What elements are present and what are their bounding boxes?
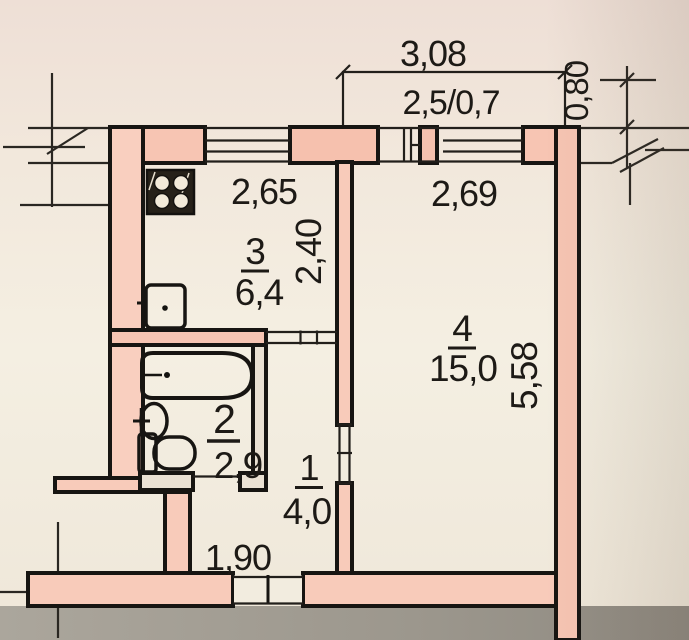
dim-balcony-width: 3,08 <box>400 33 466 74</box>
room-living-area: 15,0 <box>429 348 497 389</box>
room-bath-area: 2,9 <box>214 445 262 486</box>
dim-kitchen-width: 2,65 <box>231 171 297 212</box>
dim-hall-width: 1,90 <box>205 537 271 578</box>
mid-wall-lower <box>337 483 352 577</box>
room-kitchen-number: 3 <box>245 231 265 272</box>
top-wall-segment-mid <box>290 127 378 163</box>
room-hall-area: 4,0 <box>283 491 332 532</box>
room-bath-number: 2 <box>213 396 235 442</box>
floor-plan-canvas: 3,08 2,5/0,7 0,80 2,65 2,69 2,40 5,58 1,… <box>0 0 689 640</box>
stove-icon <box>147 170 194 214</box>
bath-bottom-wall-left <box>140 473 193 490</box>
room-kitchen-area: 6,4 <box>235 272 284 313</box>
mid-wall-upper <box>337 162 352 425</box>
bottom-wall-right <box>303 573 556 606</box>
room-living-number: 4 <box>452 308 472 349</box>
room-hall-number: 1 <box>299 447 318 488</box>
dim-living-width: 2,69 <box>431 173 497 214</box>
dim-living-depth: 5,58 <box>504 342 545 410</box>
dim-kitchen-depth: 2,40 <box>288 219 329 285</box>
bottom-wall-left <box>28 573 233 606</box>
photo-shadow <box>545 0 689 640</box>
dim-balcony-size: 2,5/0,7 <box>403 84 500 122</box>
kitchen-bath-wall <box>110 330 266 345</box>
entrance-door <box>233 575 303 604</box>
top-wall-mini-pier <box>420 127 437 163</box>
floor-plan: 3,08 2,5/0,7 0,80 2,65 2,69 2,40 5,58 1,… <box>0 0 689 640</box>
